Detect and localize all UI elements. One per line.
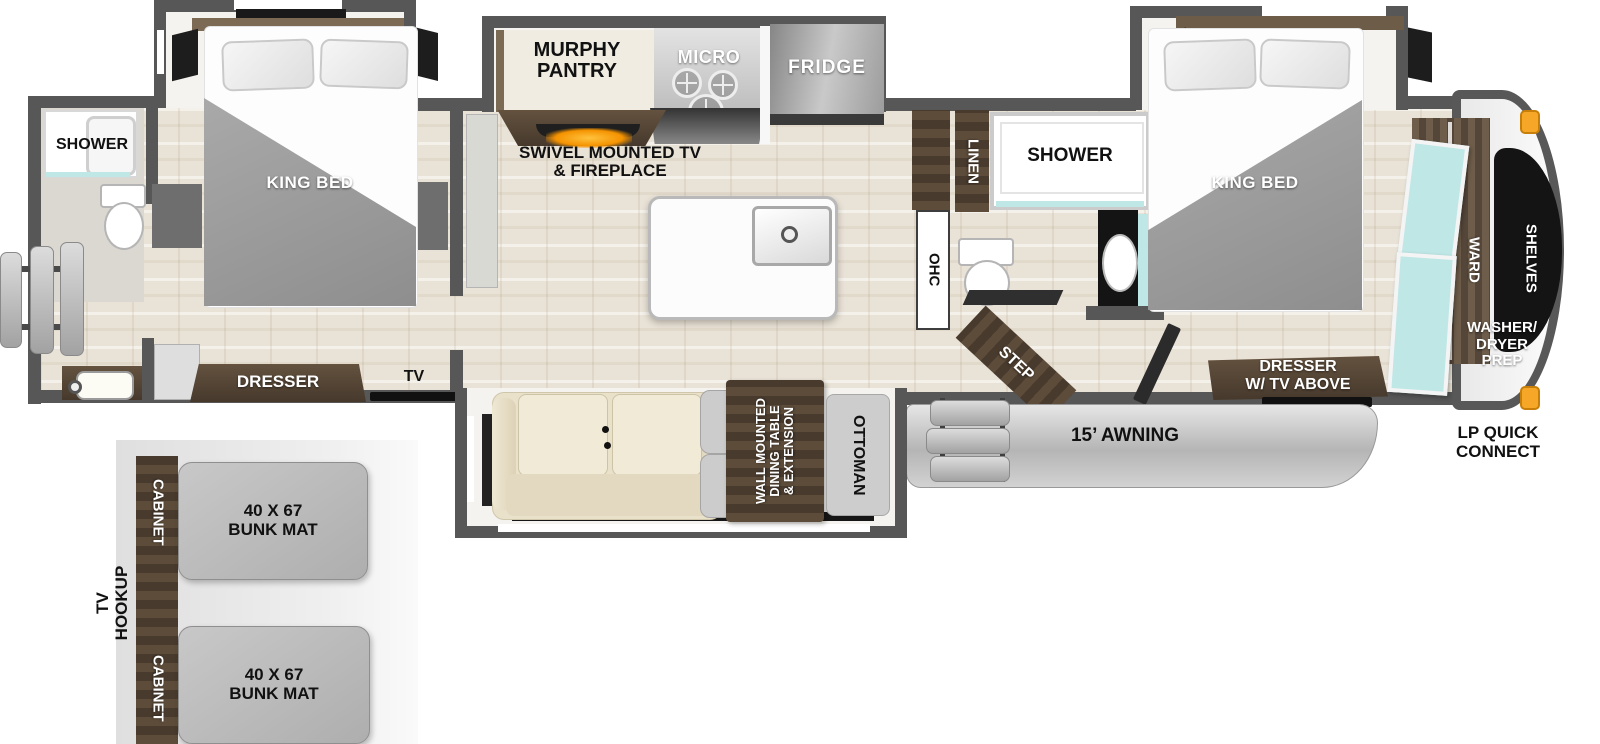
- mat2-line2: BUNK MAT: [229, 685, 318, 704]
- rear-slide-gap: [157, 30, 164, 74]
- bedroom-kitchen-wall: [450, 110, 463, 296]
- counter-divider: [760, 26, 770, 144]
- sofa-cushion: [612, 394, 702, 476]
- front-dresser-line1: DRESSER: [1259, 358, 1336, 376]
- lp-quick-connect-label: LP QUICK CONNECT: [1408, 424, 1588, 461]
- rear-tv-label: TV: [392, 368, 436, 386]
- mat1-line1: 40 X 67: [244, 502, 303, 521]
- rear-ladder-bar: [60, 242, 84, 356]
- bedroom-door: [466, 114, 498, 288]
- mat2-line1: 40 X 67: [245, 666, 304, 685]
- rear-ladder-bar: [0, 252, 22, 348]
- step-label: STEP: [995, 343, 1038, 384]
- washer-line3: PREP: [1482, 353, 1523, 370]
- sofa-back: [506, 474, 714, 516]
- ward-label: WARD: [1465, 237, 1482, 283]
- cooktop-burner-icon: [672, 68, 702, 98]
- cooktop-counter: [650, 108, 766, 144]
- cabinet-top-label: CABINET: [149, 479, 166, 546]
- front-pillow: [1259, 38, 1351, 89]
- top-wall-seg-2: [410, 98, 486, 111]
- swivel-tv-label-2: & FIREPLACE: [490, 162, 730, 181]
- front-pillow: [1163, 38, 1257, 91]
- shelves-label-wrap: SHELVES: [1518, 206, 1542, 310]
- sofa-cushion: [518, 394, 608, 476]
- rv-floorplan-canvas: SHOWER KING BED DRESSER TV MURPHY PANTRY…: [0, 0, 1600, 744]
- rear-bath-top-wall: [28, 96, 160, 108]
- micro-label: MICRO: [654, 48, 764, 68]
- bunk-mat-top-label: 40 X 67 BUNK MAT: [228, 502, 317, 539]
- cabinet-bottom-label: CABINET: [149, 655, 166, 722]
- washer-line2: DRYER: [1476, 337, 1528, 354]
- rear-faucet-icon: [68, 380, 82, 394]
- front-slide-top-window: [1262, 6, 1386, 16]
- island-faucet-icon: [781, 226, 798, 243]
- bunk-mat-bottom-label: 40 X 67 BUNK MAT: [229, 666, 318, 703]
- bunk-mat-top: 40 X 67 BUNK MAT: [178, 462, 368, 580]
- mid-shower-label: SHOWER: [994, 146, 1146, 167]
- washer-dryer-label: WASHER/ DRYER PREP: [1444, 320, 1560, 370]
- ottoman-label: OTTOMAN: [849, 415, 867, 496]
- rear-vanity-sink-icon: [76, 371, 134, 400]
- marker-light-icon: [1520, 110, 1540, 134]
- rear-bottom-trim: [88, 405, 440, 411]
- ottoman: OTTOMAN: [826, 394, 890, 516]
- table-line2: DINING TABLE: [768, 405, 782, 496]
- swivel-tv-label-1: SWIVEL MOUNTED TV: [490, 144, 730, 163]
- front-dresser-line2: W/ TV ABOVE: [1245, 376, 1350, 394]
- entry-step: [930, 400, 1010, 426]
- rear-pillow: [221, 38, 315, 91]
- fridge-label: FRIDGE: [770, 58, 884, 79]
- cabinet-top-wrap: CABINET: [140, 462, 174, 562]
- mat1-line2: BUNK MAT: [228, 521, 317, 540]
- mid-shower-glass: [996, 201, 1144, 207]
- living-bottom-trim: [498, 524, 870, 532]
- living-left-trim: [467, 416, 474, 502]
- mid-vanity-sink-icon: [1102, 234, 1138, 292]
- rear-nightstand-left: [152, 184, 202, 248]
- rear-headboard-window: [236, 9, 346, 18]
- entry-step: [926, 428, 1010, 454]
- mid-bath-shelf: [963, 290, 1064, 305]
- linen-cabinet: LINEN: [955, 110, 989, 212]
- entry-step: [930, 456, 1010, 482]
- table-line1: WALL MOUNTED: [754, 398, 768, 504]
- murphy-line1: MURPHY: [534, 40, 621, 61]
- rear-pillow: [319, 38, 409, 89]
- mid-tall-cabinet: [912, 110, 950, 210]
- ohc-cabinet: OHC: [916, 210, 950, 330]
- linen-label: LINEN: [964, 139, 981, 184]
- rear-nightstand-right: [418, 182, 448, 250]
- rear-toilet-icon: [104, 202, 144, 250]
- ward-label-wrap: WARD: [1462, 216, 1484, 304]
- fridge-base: [770, 114, 884, 125]
- table-line3: & EXTENSION: [782, 407, 796, 495]
- rear-shower-label: SHOWER: [34, 136, 150, 154]
- shelves-label: SHELVES: [1522, 224, 1539, 293]
- rear-king-bed-label: KING BED: [214, 174, 406, 193]
- murphy-pantry-label: MURPHY PANTRY: [500, 40, 654, 82]
- awning-label: 15’ AWNING: [1040, 426, 1210, 447]
- rear-dresser-label: DRESSER: [196, 373, 360, 392]
- cupholder-icon: [604, 442, 611, 449]
- dining-table-label: WALL MOUNTED DINING TABLE & EXTENSION: [740, 376, 810, 526]
- tv-hookup-line1: TV: [94, 592, 113, 614]
- lp-line2: CONNECT: [1456, 443, 1540, 462]
- tv-hookup-label: TV HOOKUP: [88, 548, 138, 658]
- tv-hookup-line2: HOOKUP: [113, 566, 132, 641]
- marker-light-icon: [1520, 386, 1540, 410]
- bunk-mat-bottom: 40 X 67 BUNK MAT: [178, 626, 370, 744]
- front-dresser-label: DRESSER W/ TV ABOVE: [1208, 358, 1388, 393]
- rear-tv-icon: [370, 392, 458, 401]
- rear-slide-left-window: [172, 29, 198, 81]
- washer-line1: WASHER/: [1467, 320, 1537, 337]
- cupholder-icon: [602, 426, 609, 433]
- front-slide-right-window: [1408, 27, 1432, 82]
- rear-ladder-bar: [30, 246, 54, 354]
- living-tv-icon: [482, 414, 492, 506]
- rear-shower-glass: [46, 172, 130, 177]
- bedroom-kitchen-wall-stub: [450, 350, 463, 392]
- front-king-bed-label: KING BED: [1158, 174, 1352, 193]
- rear-bath-lower-wall: [142, 338, 154, 400]
- cabinet-bottom-wrap: CABINET: [140, 638, 174, 738]
- ohc-label: OHC: [925, 253, 942, 286]
- lp-line1: LP QUICK: [1458, 424, 1539, 443]
- murphy-line2: PANTRY: [537, 61, 617, 82]
